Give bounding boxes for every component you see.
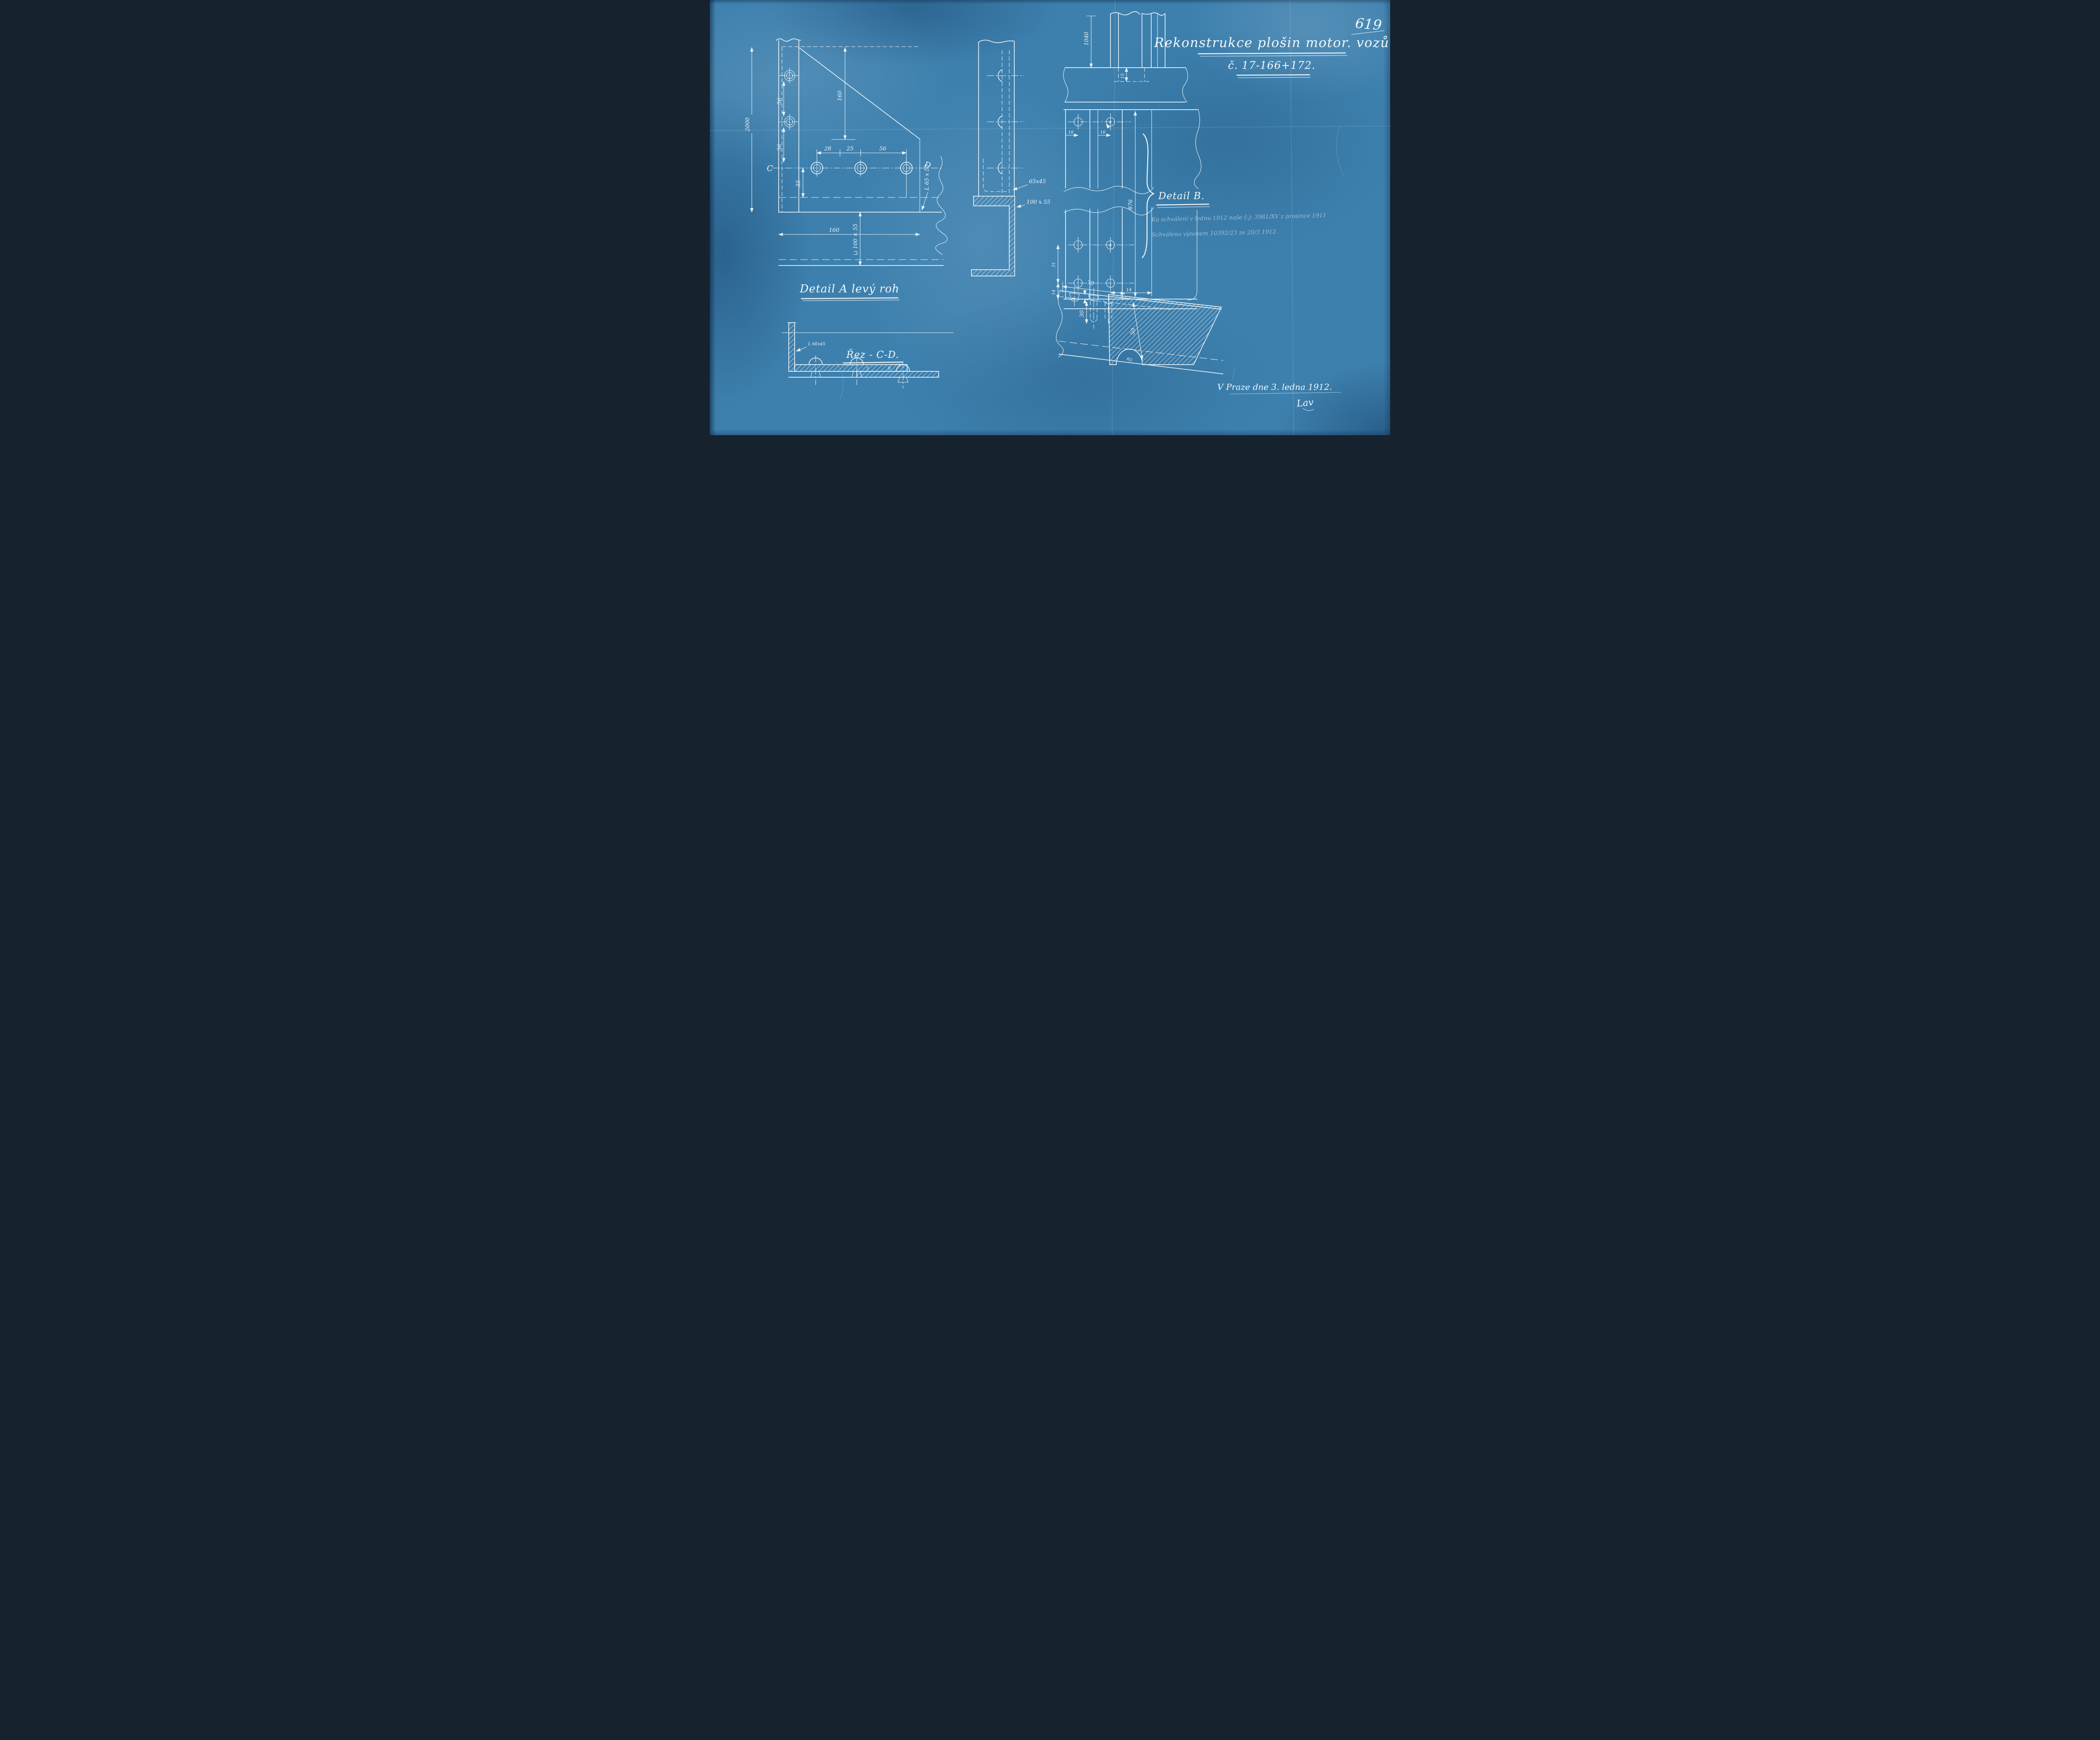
dim-56-a: 56 xyxy=(777,98,783,105)
dim-28: 28 xyxy=(824,146,832,152)
dim-56-b: 56 xyxy=(777,144,783,151)
view-side-profile: 65x45 100 x 55 xyxy=(971,40,1050,276)
dim-16-a: 16 xyxy=(1068,130,1074,135)
label-65x45: 65x45 xyxy=(1029,179,1046,185)
bolt-side xyxy=(987,162,1024,174)
detail-b-label: Detail B. xyxy=(1158,191,1205,202)
label-100x55: 100 x 55 xyxy=(1026,199,1050,205)
dim-70: 70 xyxy=(1087,280,1094,287)
dim-14-a: 14 xyxy=(1052,290,1056,295)
dim-160-vertical: 160 xyxy=(837,91,843,101)
dim-31: 31 xyxy=(1052,262,1056,268)
dim-1040: 1040 xyxy=(1084,32,1090,45)
title-block: Rekonstrukce plošin motor. vozů č. 17-16… xyxy=(1154,35,1389,78)
bolt-side xyxy=(987,70,1024,81)
dim-16-b: 16 xyxy=(1100,130,1106,135)
dim-2: 2 xyxy=(1087,296,1090,300)
dim-50: 50 xyxy=(1130,328,1137,336)
drawing-title: Rekonstrukce plošin motor. vozů xyxy=(1154,35,1389,50)
dim-2000: 2000 xyxy=(745,117,751,131)
dim-9-hole-a: 9 xyxy=(1109,121,1112,125)
section-letter-c: C xyxy=(767,164,773,173)
sheet-number: 619 xyxy=(1352,15,1384,34)
approval-line-1: Ku schválení v lednu 1912 naše č.j: 3981… xyxy=(1151,212,1326,223)
dim-160-horizontal: 160 xyxy=(829,227,840,234)
bolt-hole xyxy=(780,114,800,129)
bolt-section xyxy=(1069,287,1079,307)
view-edge-section: 70 2 30 50 65 xyxy=(1056,280,1223,374)
signature: Lav xyxy=(1296,397,1314,410)
approval-notes: Ku schválení v lednu 1912 naše č.j: 3981… xyxy=(1151,212,1327,238)
dim-9-hole-b: 9 xyxy=(1109,244,1112,248)
dim-8: 8 xyxy=(888,366,890,371)
dim-35: 35 xyxy=(795,180,802,187)
blueprint-sheet: 619 Rekonstrukce plošin motor. vozů č. 1… xyxy=(710,0,1390,435)
dim-14-b: 14 xyxy=(1126,288,1132,292)
view-detail-b: 1040 15 xyxy=(1052,12,1210,309)
dim-56-c: 56 xyxy=(879,146,887,152)
view-section-cd: Řez - C-D. L 60x45 xyxy=(782,323,953,388)
dim-angle-65x50: L 65 x 50 xyxy=(924,164,930,190)
dim-3: 3 xyxy=(866,367,869,371)
bolt-hole xyxy=(780,68,800,83)
bolt-side xyxy=(987,116,1024,128)
place-date: V Praze dne 3. ledna 1912. xyxy=(1217,382,1332,392)
dim-15: 15 xyxy=(1121,74,1125,79)
drawing-canvas: 619 Rekonstrukce plošin motor. vozů č. 1… xyxy=(710,0,1390,435)
sheet-number-text: 619 xyxy=(1354,15,1382,33)
footer: V Praze dne 3. ledna 1912. Lav xyxy=(1217,382,1341,411)
approval-line-2: Schváleno výnosem 10392/23 ze 20/3 1912. xyxy=(1152,229,1278,238)
dim-channel-100x55: ⊔ 100 × 55 xyxy=(853,223,859,255)
detail-b-brace xyxy=(1142,134,1154,258)
label-60x45: L 60x45 xyxy=(808,342,825,347)
dim-876: 876 xyxy=(1128,200,1134,210)
detail-a-label: Detail A levý roh xyxy=(799,283,899,295)
drawing-subtitle: č. 17-166+172. xyxy=(1228,59,1315,71)
dim-25: 25 xyxy=(846,146,854,152)
view-detail-a: 56 56 2000 160 C xyxy=(745,39,948,301)
dim-30: 30 xyxy=(1079,310,1085,318)
